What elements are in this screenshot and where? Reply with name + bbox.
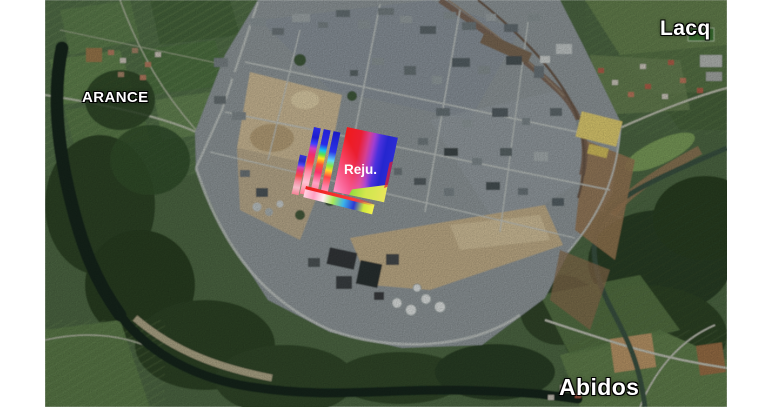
map-label-lacq: Lacq xyxy=(660,18,711,39)
satellite-grain xyxy=(45,0,727,407)
overlay-label: Reju. xyxy=(344,162,377,177)
slide-canvas: Reju. ARANCE Lacq Abidos xyxy=(0,0,770,407)
satellite-map: Reju. xyxy=(0,0,770,407)
map-label-arance: ARANCE xyxy=(82,90,149,105)
map-label-abidos: Abidos xyxy=(559,376,639,399)
